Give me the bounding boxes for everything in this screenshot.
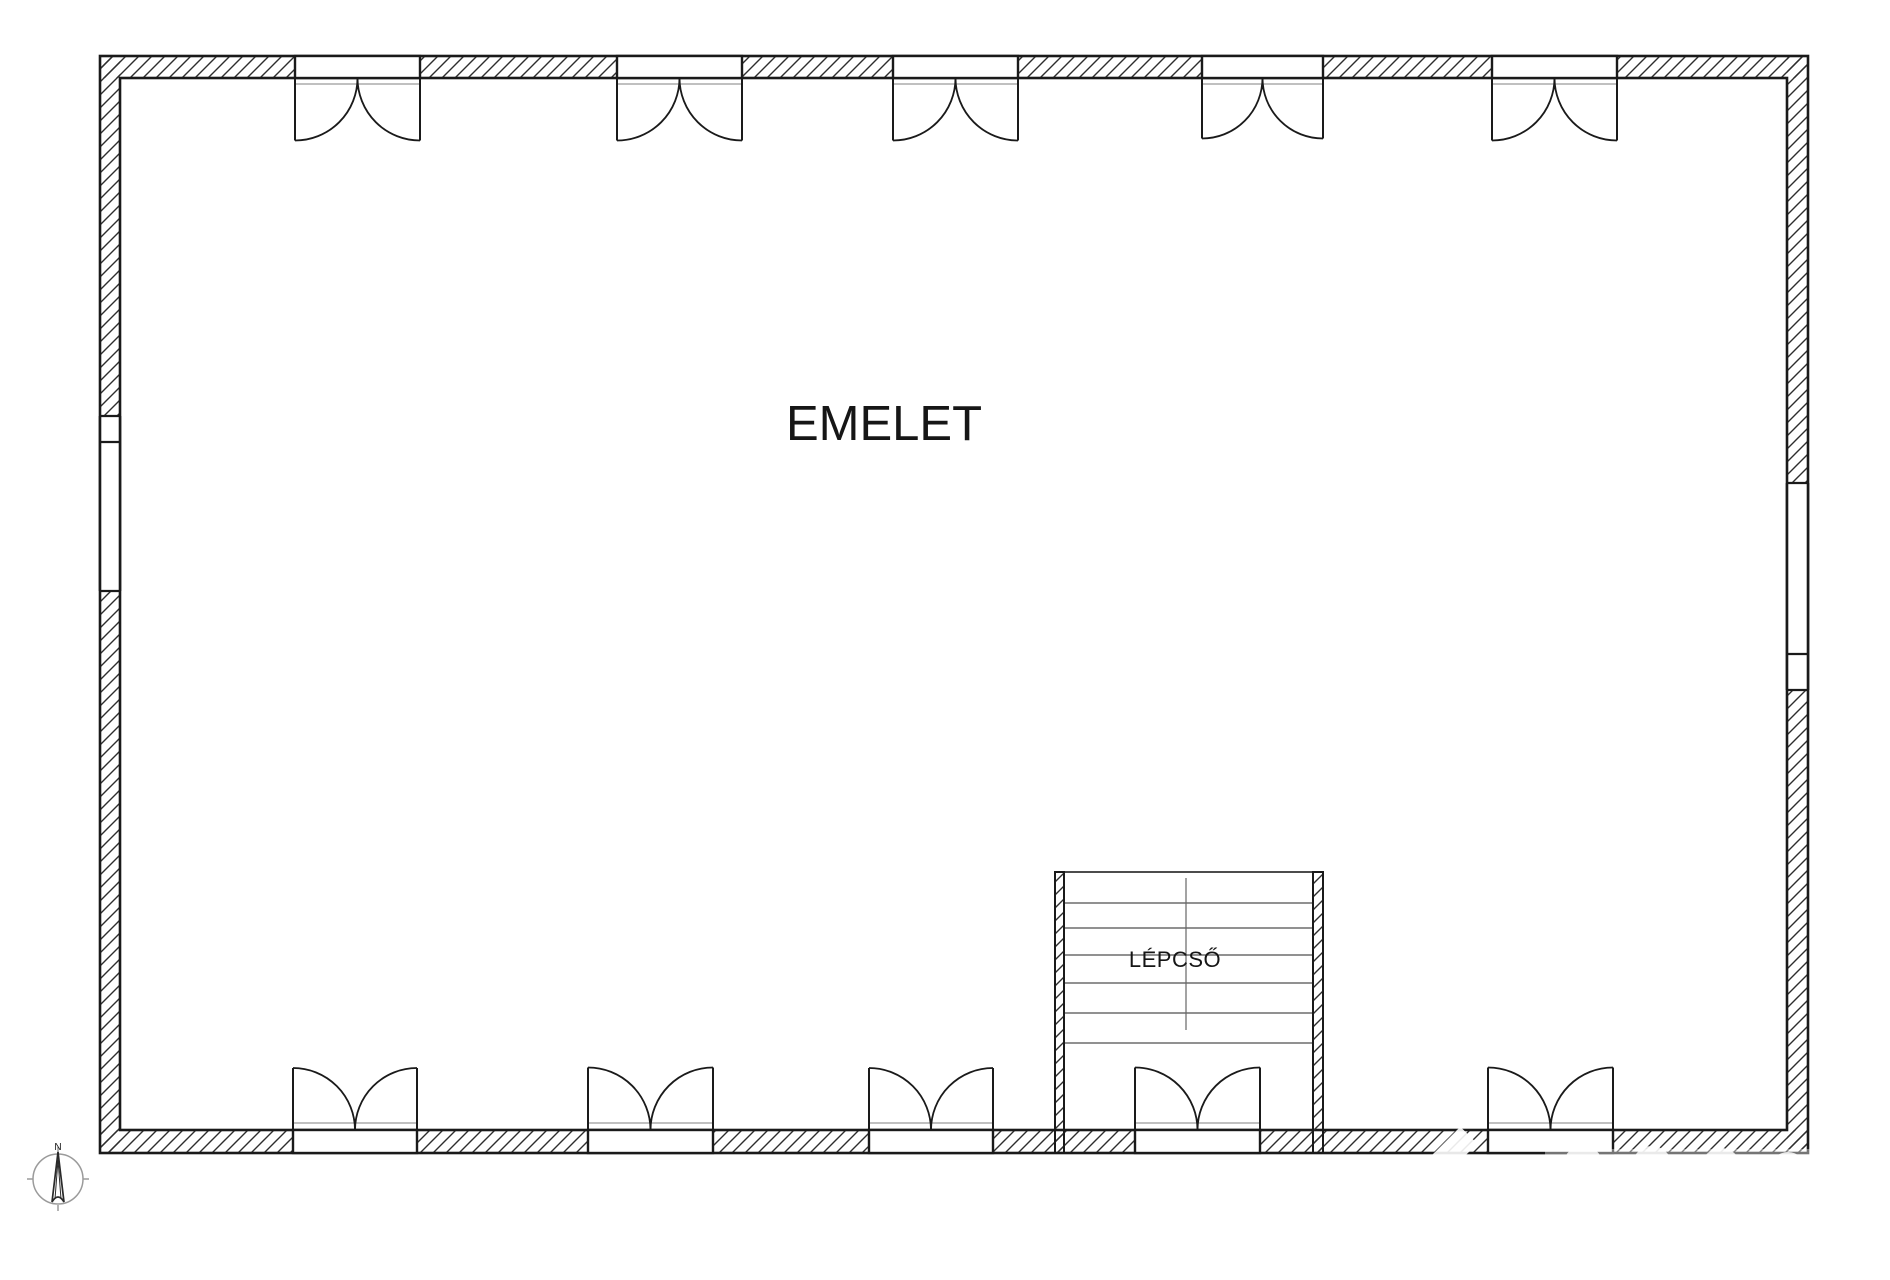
double-door-top-3 [893,56,1018,141]
door-opening [295,56,420,78]
staircase [1055,872,1323,1153]
wall-hatch-left [100,56,120,1153]
staircase-label: LÉPCSŐ [1129,947,1221,972]
plan-labels: EMELET LÉPCSŐ N [54,397,1221,1153]
double-door-bottom-3 [869,1068,993,1153]
floor-plan-canvas: EMELET LÉPCSŐ N [0,0,1890,1280]
watermark-blob [1770,1152,1806,1188]
double-door-bottom-5 [1488,1068,1613,1154]
door-opening [869,1130,993,1153]
door-opening [893,56,1018,78]
double-door-top-2 [617,56,742,141]
door-swing-arc [295,78,358,141]
stair-side-wall-right [1313,872,1323,1153]
door-opening [588,1130,713,1153]
double-door-top-1 [295,56,420,141]
compass-north-label: N [54,1142,61,1153]
compass-rose [27,1147,89,1211]
floor-plan-page: EMELET LÉPCSŐ N [0,0,1890,1280]
compass-needle-icon [52,1152,64,1202]
wall-inner-outline [120,78,1787,1130]
door-swing-arc [956,78,1019,141]
wall-outer-outline [100,56,1808,1153]
door-swing-arc [588,1068,651,1131]
watermark-blob [1564,1145,1602,1183]
door-swing-arc [293,1068,355,1130]
door-swing-arc [1492,78,1555,141]
door-swing-arc [680,78,743,141]
door-opening [1492,56,1617,78]
door-swing-arc [355,1068,417,1130]
exterior-walls [100,56,1808,1153]
double-door-bottom-2 [588,1068,713,1154]
stair-side-wall-left [1055,872,1064,1153]
double-door-bottom-4 [1135,1068,1260,1154]
door-swing-arc [617,78,680,141]
watermark-blob [1701,1148,1741,1188]
double-door-top-5 [1492,56,1617,141]
door-swing-arc [1202,78,1263,139]
door-swing-arc [1488,1068,1551,1131]
door-opening [1135,1130,1260,1153]
door-opening [1202,56,1323,78]
door-swing-arc [893,78,956,141]
door-swing-arc [358,78,421,141]
door-swing-arc [1551,1068,1614,1131]
door-swing-arc [931,1068,993,1130]
double-door-bottom-1 [293,1068,417,1153]
door-symbols [293,56,1617,1153]
window-right [1787,483,1808,690]
window-left [100,416,120,591]
door-opening [617,56,742,78]
door-swing-arc [1555,78,1618,141]
door-opening [293,1130,417,1153]
double-door-top-4 [1202,56,1323,139]
watermark-blob [1632,1146,1672,1186]
wall-windows [100,416,1808,690]
door-swing-arc [1135,1068,1198,1131]
door-swing-arc [869,1068,931,1130]
floor-label: EMELET [786,397,982,451]
door-swing-arc [1263,78,1324,139]
window-opening [1787,483,1808,690]
door-swing-arc [651,1068,714,1131]
door-swing-arc [1198,1068,1261,1131]
